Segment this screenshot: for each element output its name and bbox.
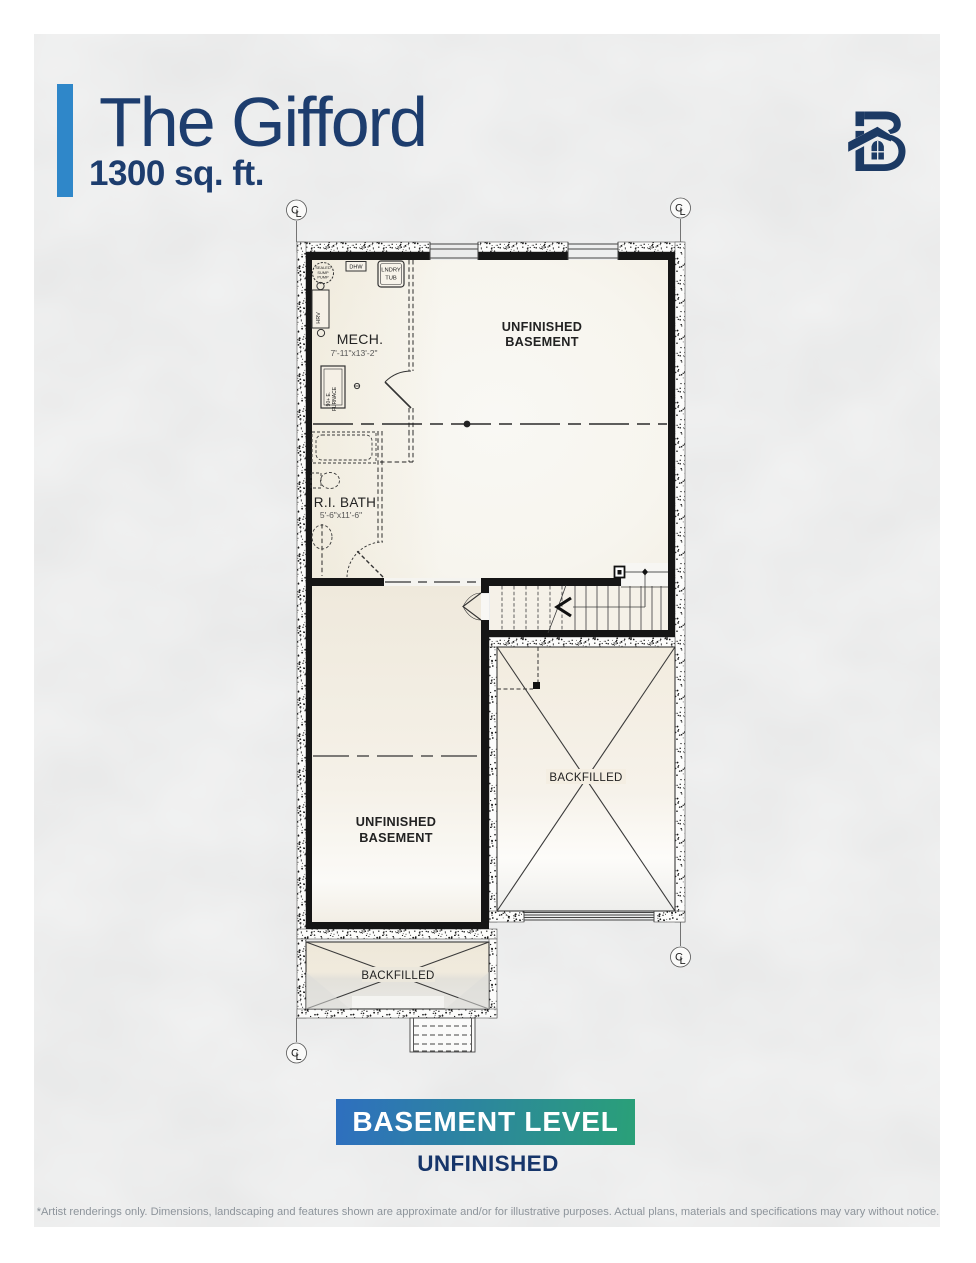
- svg-text:L: L: [295, 1051, 301, 1063]
- svg-text:BACKFILLED: BACKFILLED: [361, 970, 434, 982]
- svg-text:HRV: HRV: [316, 312, 322, 324]
- svg-text:UNFINISHED: UNFINISHED: [356, 815, 437, 829]
- svg-text:L: L: [679, 955, 685, 967]
- svg-text:7'-11"x13'-2": 7'-11"x13'-2": [331, 348, 378, 358]
- svg-text:MECH.: MECH.: [337, 331, 384, 347]
- svg-text:L: L: [295, 208, 301, 220]
- svg-text:DHW: DHW: [349, 265, 363, 271]
- svg-text:PUMP: PUMP: [317, 275, 329, 280]
- svg-text:LNDRY: LNDRY: [381, 268, 401, 274]
- svg-text:BASEMENT: BASEMENT: [359, 831, 433, 845]
- svg-text:UNFINISHED: UNFINISHED: [502, 320, 583, 334]
- svg-text:5'-6"x11'-6": 5'-6"x11'-6": [320, 510, 362, 520]
- svg-text:BASEMENT: BASEMENT: [505, 335, 579, 349]
- svg-text:L: L: [679, 206, 685, 218]
- svg-text:TUB: TUB: [385, 276, 397, 282]
- svg-text:BACKFILLED: BACKFILLED: [549, 772, 622, 784]
- svg-text:FURNACE: FURNACE: [332, 386, 338, 411]
- svg-text:R.I. BATH: R.I. BATH: [314, 495, 376, 510]
